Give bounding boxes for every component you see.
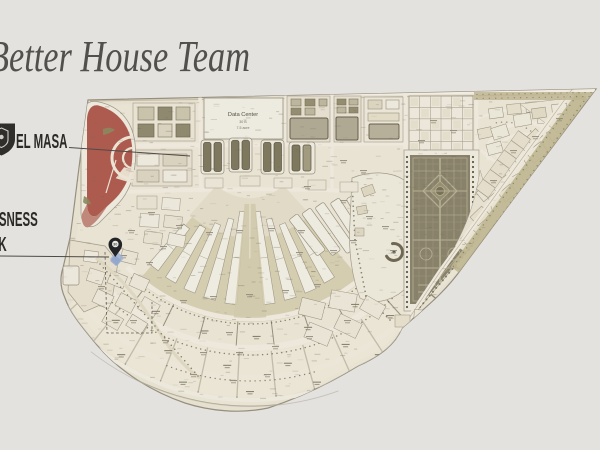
svg-text:Better House Team: Better House Team	[0, 32, 250, 81]
svg-text:EL MASA: EL MASA	[16, 129, 67, 152]
svg-text:K: K	[0, 232, 7, 255]
svg-text:30: 30	[113, 243, 117, 247]
svg-text:SNESS: SNESS	[0, 207, 38, 230]
